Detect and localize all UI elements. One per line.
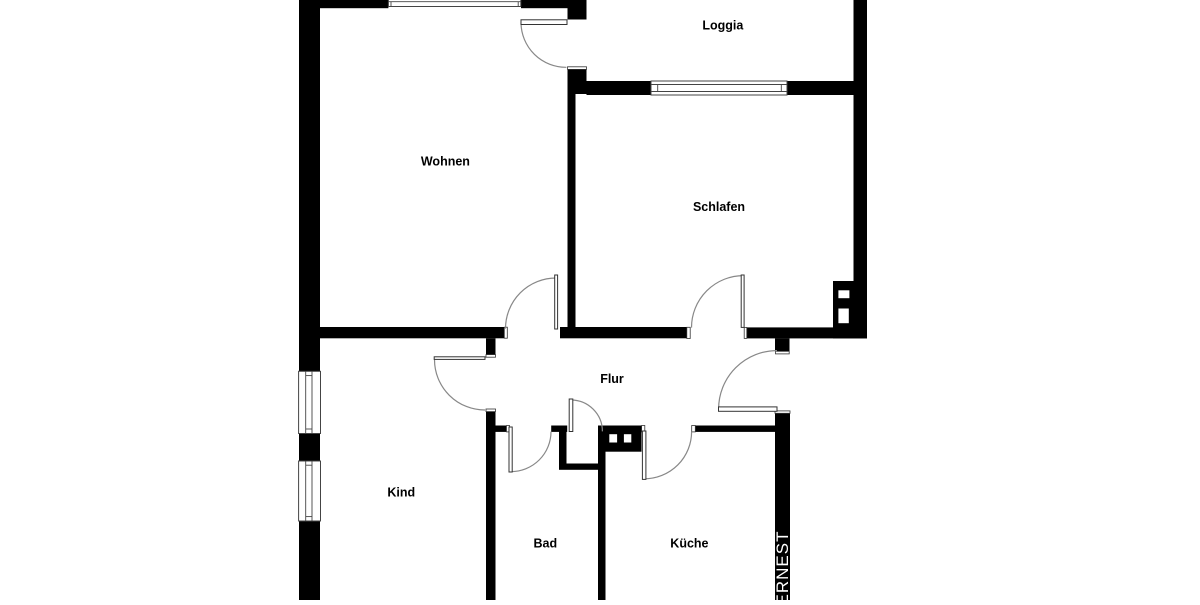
svg-text:Loggia: Loggia (702, 18, 744, 32)
svg-text:Kind: Kind (387, 486, 415, 500)
svg-text:Bad: Bad (533, 536, 557, 550)
svg-text:Flur: Flur (600, 372, 624, 386)
svg-text:Küche: Küche (670, 536, 708, 550)
svg-text:Wohnen: Wohnen (421, 154, 470, 168)
svg-text:Schlafen: Schlafen (693, 200, 745, 214)
svg-text:ERNEST: ERNEST (773, 531, 792, 600)
